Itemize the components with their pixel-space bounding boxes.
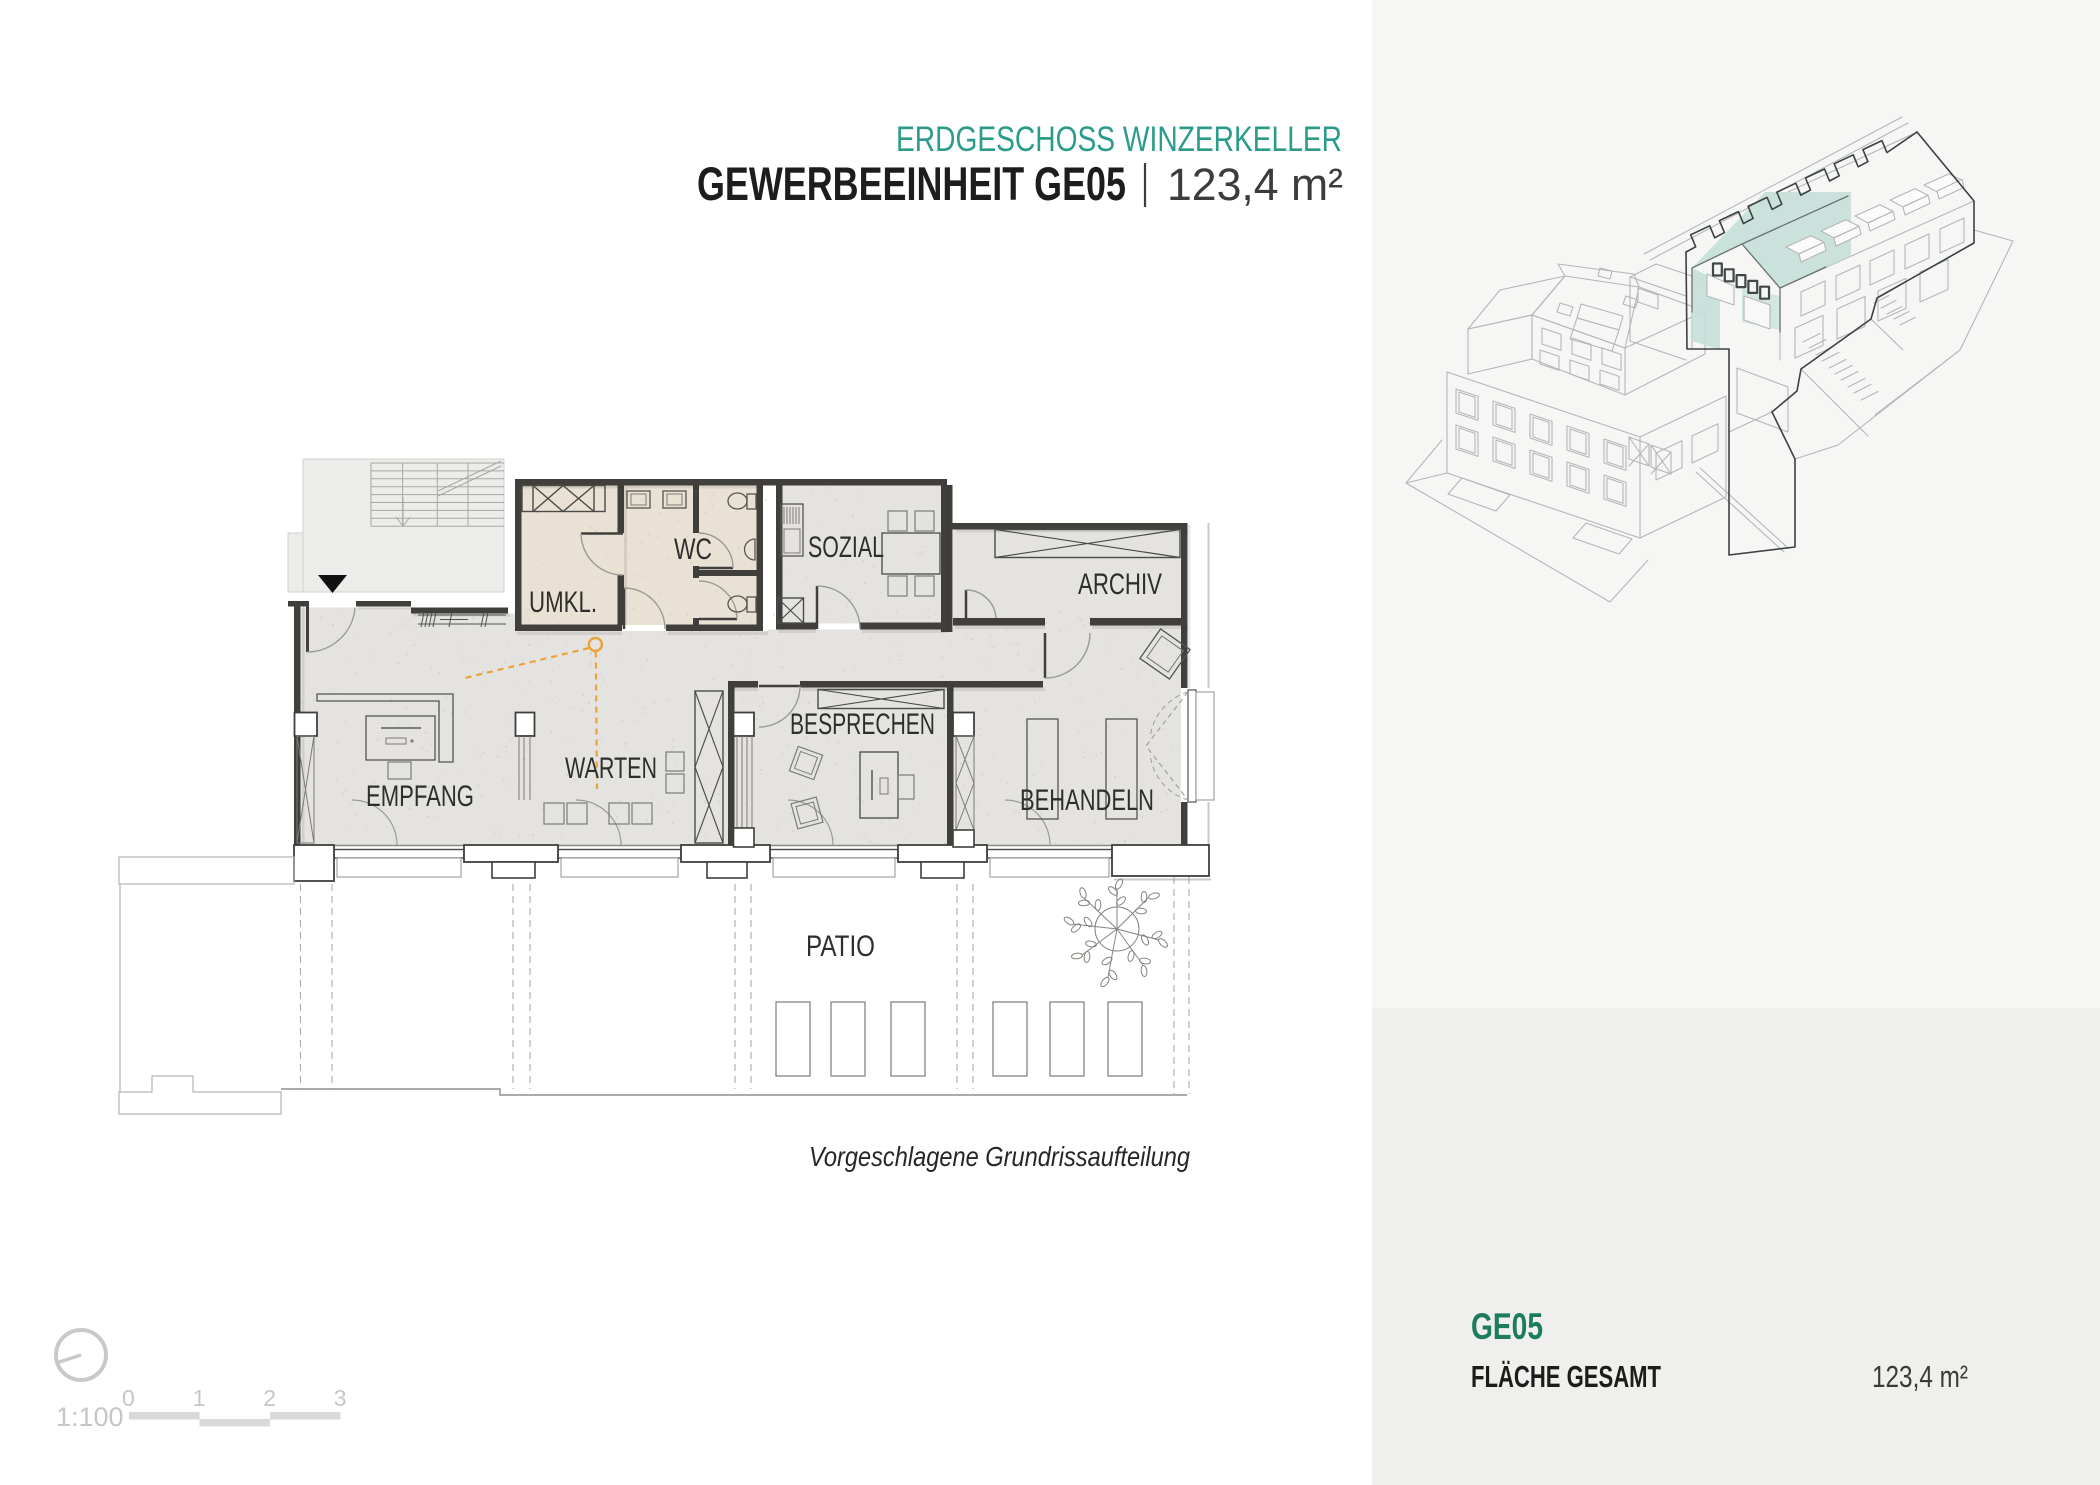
svg-text:ARCHIV: ARCHIV — [1078, 568, 1162, 601]
svg-text:FLÄCHE GESAMT: FLÄCHE GESAMT — [1471, 1359, 1661, 1394]
svg-text:WARTEN: WARTEN — [565, 752, 657, 785]
svg-text:1:100: 1:100 — [56, 1402, 124, 1432]
svg-text:BEHANDELN: BEHANDELN — [1020, 784, 1154, 817]
svg-text:GEWERBEEINHEIT GE05: GEWERBEEINHEIT GE05 — [697, 157, 1126, 210]
svg-text:GE05: GE05 — [1471, 1306, 1543, 1347]
svg-text:1: 1 — [193, 1385, 206, 1411]
svg-text:2: 2 — [263, 1385, 276, 1411]
svg-text:UMKL.: UMKL. — [529, 586, 597, 619]
svg-text:ERDGESCHOSS WINZERKELLER: ERDGESCHOSS WINZERKELLER — [896, 120, 1342, 159]
svg-text:3: 3 — [334, 1385, 347, 1411]
svg-text:123,4 m²: 123,4 m² — [1167, 159, 1343, 210]
svg-text:Vorgeschlagene Grundrissauftei: Vorgeschlagene Grundrissaufteilung — [809, 1141, 1190, 1172]
svg-text:EMPFANG: EMPFANG — [366, 780, 474, 813]
svg-text:WC: WC — [674, 533, 712, 566]
svg-text:PATIO: PATIO — [806, 930, 875, 963]
svg-text:0: 0 — [122, 1385, 135, 1411]
svg-text:123,4 m²: 123,4 m² — [1872, 1359, 1968, 1394]
svg-text:BESPRECHEN: BESPRECHEN — [790, 708, 935, 741]
svg-text:SOZIAL: SOZIAL — [808, 531, 884, 564]
